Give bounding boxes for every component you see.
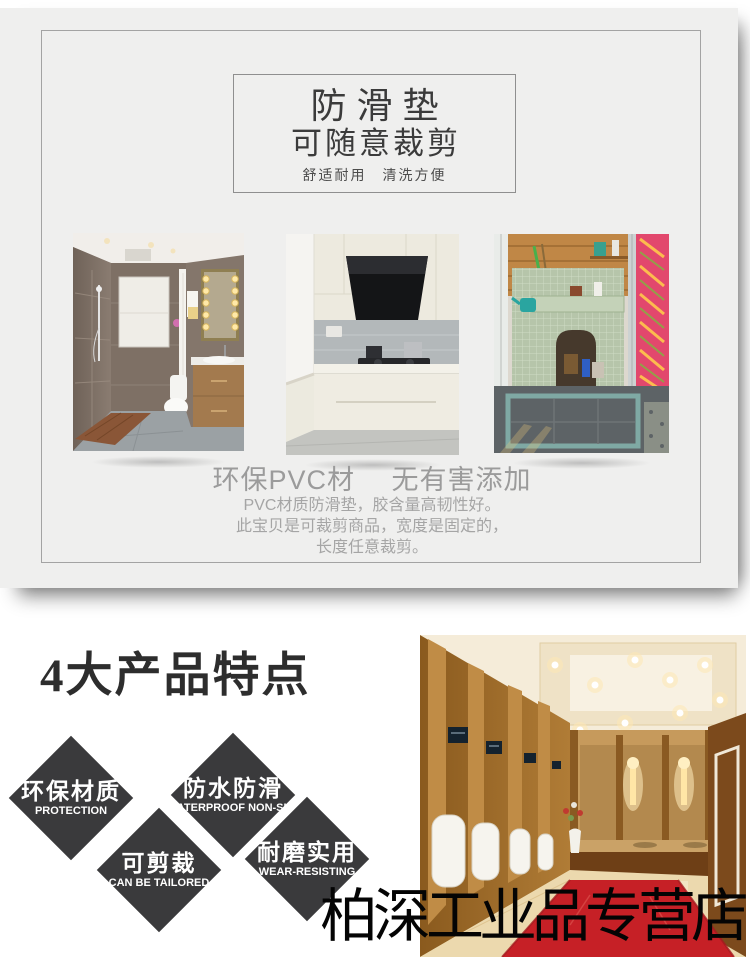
bathroom-photo: [73, 233, 244, 451]
material-heading: 环保PVC材 无有害添加: [42, 458, 702, 497]
kitchen-photo: [286, 234, 459, 455]
feature-zh: 耐磨实用: [241, 839, 373, 865]
promo-panel: 防滑垫 可随意裁剪 舒适耐用 清洗方便: [0, 8, 738, 588]
feature-zh: 可剪裁: [93, 850, 225, 876]
store-name-watermark: 柏深工业品专营店: [320, 884, 744, 950]
description-line: 长度任意裁剪。: [42, 537, 702, 558]
kitchen-illustration: [286, 234, 459, 455]
feature-en: PROTECTION: [5, 804, 137, 818]
product-description: PVC材质防滑垫，胶含量高韧性好。 此宝贝是可裁剪商品，宽度是固定的， 长度任意…: [42, 495, 702, 558]
feature-label: 防水防滑 WATERPROOF NON-SLIP: [167, 775, 299, 815]
balcony-illustration: [494, 234, 669, 453]
feature-label: 可剪裁 CAN BE TAILORED: [93, 850, 225, 890]
feature-label: 环保材质 PROTECTION: [5, 778, 137, 818]
description-line: 此宝贝是可裁剪商品，宽度是固定的，: [42, 516, 702, 537]
balcony-photo: [494, 234, 669, 453]
feature-en: CAN BE TAILORED: [93, 876, 225, 890]
product-title: 防滑垫: [234, 86, 515, 126]
product-detail-page: 防滑垫 可随意裁剪 舒适耐用 清洗方便: [0, 0, 750, 971]
product-title-box: 防滑垫 可随意裁剪 舒适耐用 清洗方便: [233, 74, 516, 193]
product-subtitle: 可随意裁剪: [234, 126, 515, 161]
feature-zh: 环保材质: [5, 778, 137, 804]
feature-diamond-protection: 环保材质 PROTECTION: [9, 736, 133, 860]
feature-label: 耐磨实用 WEAR-RESISTING: [241, 839, 373, 879]
feature-en: WEAR-RESISTING: [241, 865, 373, 879]
feature-en: WATERPROOF NON-SLIP: [167, 801, 299, 815]
feature-zh: 防水防滑: [167, 775, 299, 801]
description-line: PVC材质防滑垫，胶含量高韧性好。: [42, 495, 702, 516]
features-heading: 4大产品特点: [40, 636, 311, 705]
bathroom-illustration: [73, 233, 244, 451]
promo-border-box: 防滑垫 可随意裁剪 舒适耐用 清洗方便: [41, 30, 701, 563]
product-tagline: 舒适耐用 清洗方便: [234, 165, 515, 185]
